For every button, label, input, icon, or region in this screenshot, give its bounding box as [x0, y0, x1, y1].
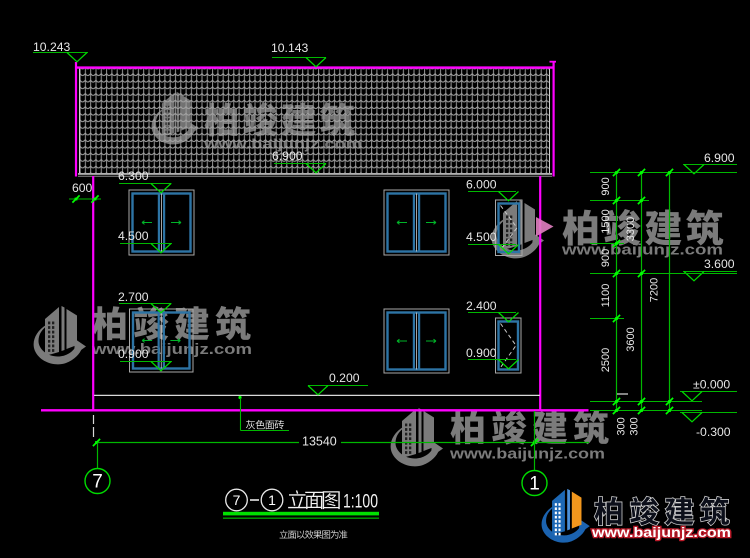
- svg-text:7: 7: [92, 472, 103, 493]
- svg-text:1: 1: [268, 492, 276, 508]
- svg-text:www.baijunjz.com: www.baijunjz.com: [591, 524, 731, 540]
- svg-text:-0.300: -0.300: [696, 425, 731, 439]
- svg-text:7200: 7200: [649, 278, 661, 302]
- svg-text:6.900: 6.900: [704, 151, 735, 165]
- svg-text:600: 600: [72, 181, 93, 195]
- svg-text:2500: 2500: [600, 348, 612, 372]
- svg-text:13540: 13540: [302, 435, 337, 449]
- svg-text:0.900: 0.900: [466, 346, 497, 360]
- svg-text:6.900: 6.900: [272, 149, 303, 163]
- svg-text:1500: 1500: [600, 209, 612, 233]
- svg-text:1:100: 1:100: [343, 491, 378, 513]
- svg-text:4.500: 4.500: [118, 229, 149, 243]
- svg-text:6.000: 6.000: [466, 178, 497, 192]
- svg-text:300: 300: [616, 417, 628, 435]
- svg-text:4.500: 4.500: [466, 230, 497, 244]
- svg-text:1100: 1100: [600, 284, 612, 308]
- svg-text:3600: 3600: [625, 327, 637, 351]
- svg-text:900: 900: [600, 177, 612, 195]
- svg-text:3300: 3300: [625, 217, 637, 241]
- svg-text:±0.000: ±0.000: [693, 378, 730, 392]
- svg-text:300: 300: [629, 417, 641, 435]
- svg-text:www.baijunjz.com: www.baijunjz.com: [91, 342, 252, 358]
- svg-text:0.900: 0.900: [118, 347, 149, 361]
- svg-text:10.243: 10.243: [33, 40, 70, 54]
- svg-text:6.300: 6.300: [118, 169, 149, 183]
- svg-text:900: 900: [600, 249, 612, 267]
- svg-text:1: 1: [529, 474, 540, 495]
- svg-text:www.baijunjz.com: www.baijunjz.com: [449, 447, 605, 463]
- svg-text:7: 7: [233, 492, 241, 508]
- svg-text:2.700: 2.700: [118, 290, 149, 304]
- svg-text:2.400: 2.400: [466, 299, 497, 313]
- svg-text:0.200: 0.200: [329, 371, 360, 385]
- svg-text:3.600: 3.600: [704, 257, 735, 271]
- svg-text:10.143: 10.143: [271, 41, 308, 55]
